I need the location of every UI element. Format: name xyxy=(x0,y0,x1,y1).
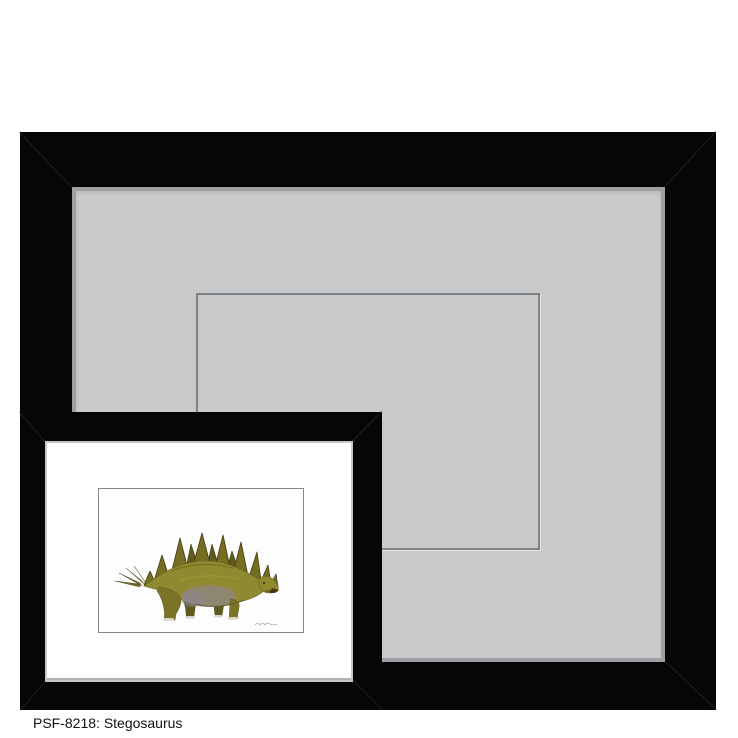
artwork xyxy=(98,488,304,633)
miter-line xyxy=(20,681,46,710)
miter-line xyxy=(19,412,45,441)
miter-line xyxy=(352,411,382,441)
product-caption: PSF-8218: Stegosaurus xyxy=(33,713,182,733)
stegosaurus-illustration xyxy=(99,489,303,632)
miter-line xyxy=(19,132,72,188)
miter-line xyxy=(664,131,716,187)
product-image: PSF-8218: Stegosaurus xyxy=(0,0,738,738)
inset-frame xyxy=(20,412,382,710)
miter-line xyxy=(353,680,383,710)
artist-signature xyxy=(255,623,277,625)
miter-line xyxy=(665,661,717,710)
